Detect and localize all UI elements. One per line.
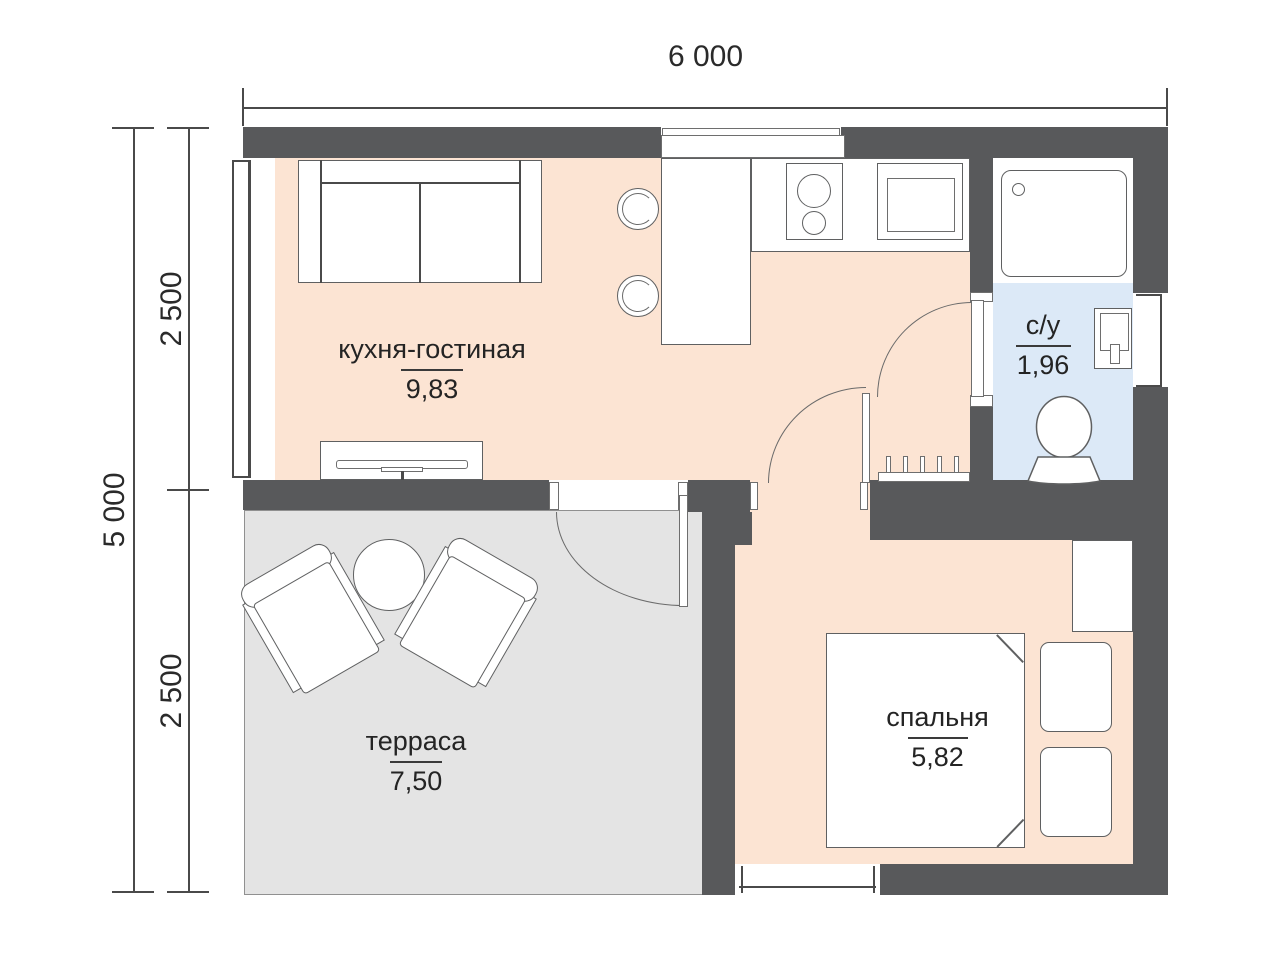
kitchen-left-window-inner-line [248,160,251,478]
dim-left-outer-line [133,128,135,893]
terrace-door-jamb-left [549,482,559,510]
wall-bottom-right [880,864,1168,895]
kitchen-left-window-outer-line [232,160,234,478]
tv-stem [401,471,404,480]
bedroom-area: 5,82 [845,742,1030,773]
dim-height-top: 2 500 [155,249,189,369]
dim-top-tick-left [242,88,244,126]
bed-pillow-top [1040,642,1112,732]
shower-drain [1012,183,1025,196]
wall-bathroom-left-upper [970,158,993,302]
bedroom-window-line [739,886,876,888]
bathroom-label: с/у 1,96 [993,310,1093,381]
kitchen-left-window-cap-bottom [232,476,251,478]
wall-right-lower [1133,387,1168,864]
wall-right-upper [1133,158,1168,293]
floor-plan: кухня-гостиная 9,83 с/у 1,96 терраса 7,5… [0,0,1280,960]
terrace-divider [390,761,442,763]
wall-top-right [841,127,1168,158]
kitchen-left-window [230,158,275,480]
sofa-armrest-right-line [519,160,521,283]
sofa-armrest-left-line [320,160,322,283]
dim-height-total: 5 000 [98,450,132,570]
bed-pillow-bottom [1040,747,1112,837]
wall-bedroom-top [870,480,1168,540]
stove-burner-small [802,211,826,235]
bathroom-window-cap-top [1136,294,1162,296]
kitchen-living-area: 9,83 [307,374,557,405]
bedroom-name: спальня [845,702,1030,733]
terrace-name: терраса [336,726,496,757]
kitchen-living-name: кухня-гостиная [307,334,557,365]
wall-terrace-bedroom [702,480,735,895]
bathroom-window [1133,293,1168,387]
bedroom-window-jamb-left [741,866,743,893]
toilet [1026,395,1104,485]
dim-left-inner-tick-middle [167,489,209,491]
bathroom-window-line [1160,295,1162,385]
dim-left-inner-tick-top [167,127,209,129]
bedroom-window [735,864,880,895]
stool-top-back [622,193,654,225]
bedroom-window-jamb-right [873,866,875,893]
wardrobe [1072,540,1133,632]
bedroom-door-jamb-right [860,482,868,510]
bathroom-faucet [1110,344,1120,364]
bathroom-divider [1016,345,1071,347]
dim-width-total: 6 000 [243,40,1168,74]
stove-burner-large [797,174,831,208]
dim-left-outer-tick-bottom [112,891,154,893]
coat-hook-4 [937,456,942,473]
wall-bedroom-stub [735,512,752,545]
bathroom-area: 1,96 [993,350,1093,381]
wall-kitchen-bedroom-left [702,480,750,512]
dim-left-inner-tick-bottom [167,891,209,893]
kitchen-sink-basin [887,178,955,232]
kitchen-living-label: кухня-гостиная 9,83 [307,334,557,405]
bedroom-door-leaf [862,393,870,483]
terrace-area: 7,50 [336,766,496,797]
dim-height-bottom: 2 500 [155,631,189,751]
coat-hook-5 [954,456,959,473]
bedroom-label: спальня 5,82 [845,702,1030,773]
window-sill-counter [661,135,845,158]
bedroom-divider [908,737,968,739]
wall-kitchen-terrace [243,480,549,510]
coat-hook-2 [903,456,908,473]
coat-rack-shelf [878,472,970,482]
dim-left-outer-tick-top [112,127,154,129]
coat-hook-1 [886,456,891,473]
wall-top-left [243,127,661,158]
bathroom-window-cap-bottom [1136,385,1162,387]
dim-left-inner-line [188,128,190,893]
dim-top-line [243,107,1168,109]
terrace-label: терраса 7,50 [336,726,496,797]
kitchen-peninsula [661,158,751,345]
sofa-backrest-line [321,182,520,184]
terrace-door-leaf [679,495,688,607]
stool-bottom-back [622,280,654,312]
dim-top-tick-right [1166,88,1168,126]
wall-bathroom-left-lower [970,397,993,480]
coat-hook-3 [920,456,925,473]
kitchen-living-divider [401,369,463,371]
bathroom-name: с/у [993,310,1093,341]
kitchen-left-window-cap-top [232,160,251,162]
bathroom-door-leaf [971,300,984,397]
bedroom-door-jamb-left [750,482,758,510]
sofa-seat-divider-line [419,183,421,283]
